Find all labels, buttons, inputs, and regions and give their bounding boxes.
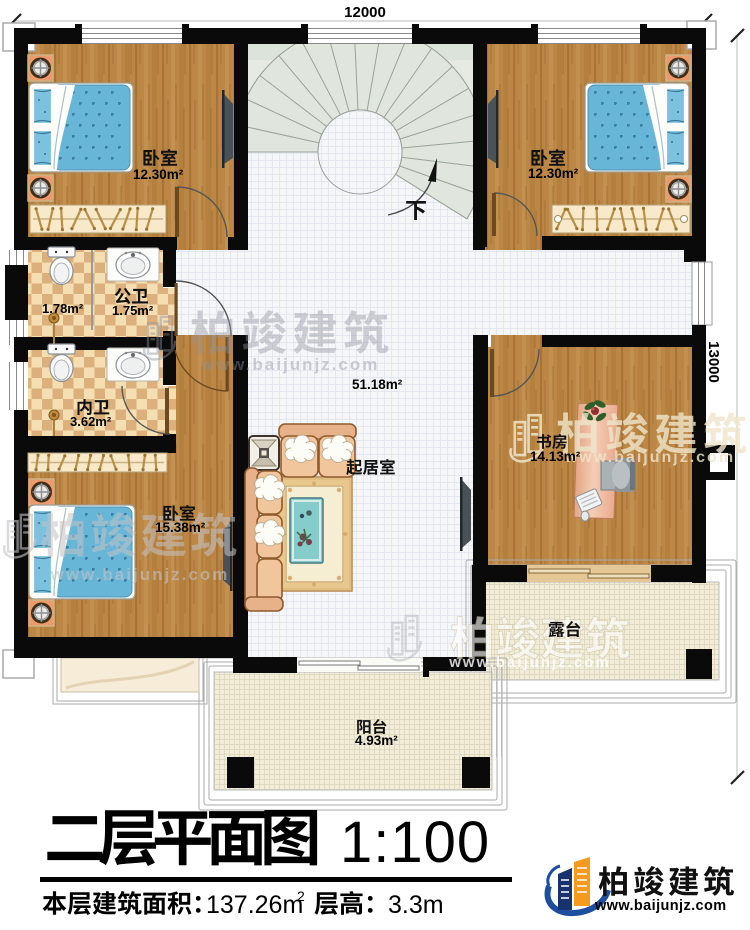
svg-text:15.38m²: 15.38m² xyxy=(155,520,206,535)
svg-text:12.30m²: 12.30m² xyxy=(133,167,184,182)
svg-text:1:100: 1:100 xyxy=(340,810,490,875)
svg-text:2: 2 xyxy=(297,888,305,904)
svg-text:12.30m²: 12.30m² xyxy=(528,166,579,181)
svg-text:14.13m²: 14.13m² xyxy=(530,449,581,464)
svg-text:137.26m: 137.26m xyxy=(206,891,303,919)
svg-text:3.3m: 3.3m xyxy=(388,891,444,919)
svg-text:4.93m²: 4.93m² xyxy=(355,733,398,748)
svg-text:www.baijunjz.com: www.baijunjz.com xyxy=(594,898,727,914)
svg-text:3.62m²: 3.62m² xyxy=(70,414,112,429)
svg-text:12000: 12000 xyxy=(344,4,386,21)
svg-text:www.baijunjz.com: www.baijunjz.com xyxy=(200,355,380,374)
svg-text:51.18m²: 51.18m² xyxy=(352,377,403,392)
svg-text:1.78m²: 1.78m² xyxy=(42,301,84,316)
svg-text:www.baijunjz.com: www.baijunjz.com xyxy=(448,654,610,671)
svg-text:1.75m²: 1.75m² xyxy=(112,303,154,318)
svg-text:www.baijunjz.com: www.baijunjz.com xyxy=(50,565,230,584)
svg-text:www.baijunjz.com: www.baijunjz.com xyxy=(564,449,735,466)
svg-text:13000: 13000 xyxy=(705,341,722,383)
